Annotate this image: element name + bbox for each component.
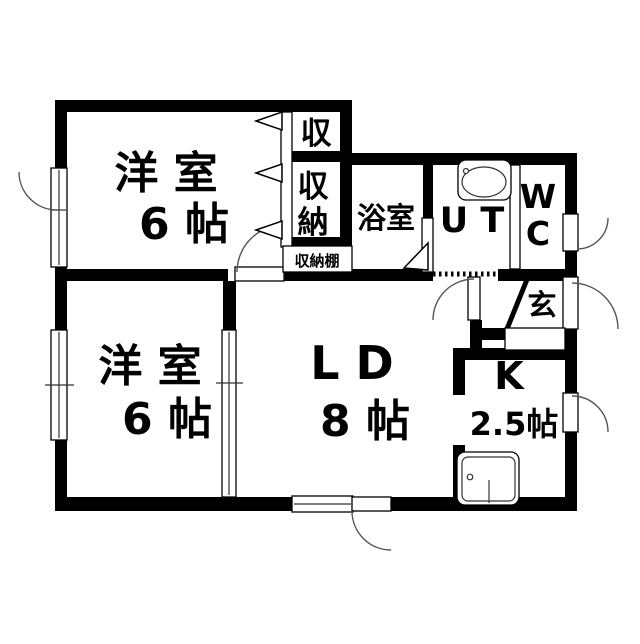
entrance-step-box	[505, 328, 565, 350]
wall-kitchen-left-upper	[453, 348, 465, 395]
wall-toilet-bottom	[498, 269, 565, 281]
label-bedroom-top-name: 洋 室	[114, 148, 217, 199]
wall-bedroom-ld-upper	[223, 281, 236, 330]
label-kitchen-name: K	[494, 354, 525, 398]
wall-exterior-left	[55, 100, 67, 511]
floor-plan-drawing: 洋 室 6 帖 洋 室 6 帖 L D 8 帖 K 2.5帖 浴室 U T W …	[0, 0, 640, 640]
wall-exterior-top-left-section	[55, 100, 352, 112]
washbasin-faucet	[464, 169, 469, 174]
door-entrance	[563, 277, 578, 329]
wall-bedrooms-divider	[55, 269, 228, 281]
label-living-dining-name: L D	[310, 336, 394, 390]
label-bedroom-bottom-size: 6 帖	[122, 394, 212, 445]
floor-plan-page: 洋 室 6 帖 洋 室 6 帖 L D 8 帖 K 2.5帖 浴室 U T W …	[0, 0, 640, 640]
wall-bathroom-bottom	[340, 269, 433, 281]
wall-exterior-right	[565, 153, 577, 511]
window-toilet	[563, 214, 578, 251]
door-bedroom-top	[235, 267, 284, 281]
label-toilet-line2: C	[526, 214, 550, 253]
window-toilet-swing-arc	[577, 218, 608, 249]
label-storage-top: 収	[301, 116, 332, 152]
wall-hall-entrance	[470, 320, 482, 348]
door-terrace-arc	[352, 511, 391, 550]
wall-exterior-top-right-section	[340, 153, 577, 165]
wall-bathroom-utility	[423, 165, 433, 218]
label-entrance: 玄	[527, 288, 556, 322]
door-entrance-arc	[572, 283, 618, 329]
label-closet-line1: 収	[298, 169, 329, 205]
label-bedroom-top-size: 6 帖	[139, 199, 229, 250]
label-kitchen-size: 2.5帖	[470, 405, 559, 443]
label-toilet-line1: W	[520, 177, 556, 216]
label-bathroom: 浴室	[357, 201, 415, 235]
label-closet-line2: 納	[298, 205, 329, 241]
door-kitchen-back	[563, 393, 578, 432]
door-terrace	[352, 497, 391, 511]
label-bedroom-bottom-name: 洋 室	[98, 341, 201, 392]
kitchen-sink-faucet	[467, 474, 473, 480]
label-living-dining-size: 8 帖	[320, 396, 410, 447]
kitchen-sink-icon	[457, 452, 519, 505]
door-hall-ld	[468, 277, 480, 320]
label-utility: U T	[440, 201, 505, 241]
label-storage-shelf: 収納棚	[294, 252, 339, 270]
washbasin-icon	[458, 160, 511, 200]
